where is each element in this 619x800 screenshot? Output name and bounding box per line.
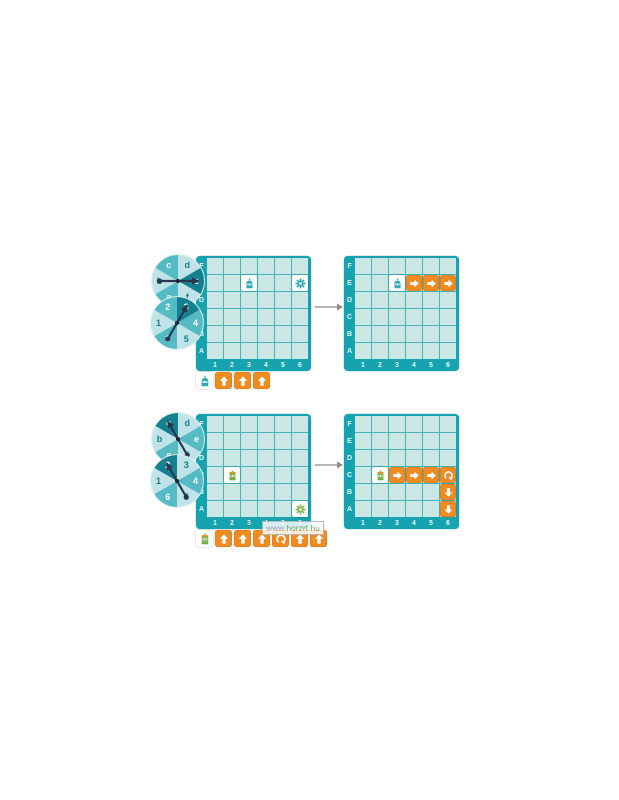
- spinner-wedge: [178, 413, 201, 439]
- board-after: FEDCBA123456: [344, 256, 459, 371]
- direction-card: [440, 467, 456, 483]
- col-label: 2: [372, 518, 388, 529]
- number-spinner: 345612: [150, 454, 204, 508]
- right-arrow-icon: [409, 470, 420, 481]
- grid-cell: [224, 416, 240, 432]
- direction-card: [440, 501, 456, 517]
- grid-cell: [258, 275, 274, 291]
- grid-cell: [241, 433, 257, 449]
- grid-cell: [207, 275, 223, 291]
- grid-cell: [241, 258, 257, 274]
- grid-cell: [355, 433, 371, 449]
- grid-cell: [241, 484, 257, 500]
- watermark: www.horzrt.hu: [262, 521, 324, 535]
- row-label: B: [197, 484, 206, 500]
- spinner-label: 1: [156, 476, 161, 486]
- grid-cell: [440, 416, 456, 432]
- grid-cell: [207, 433, 223, 449]
- up-arrow-icon: [256, 375, 268, 387]
- grid-cell: [389, 467, 405, 483]
- grid-cell: [406, 484, 422, 500]
- spinner-label: d: [185, 260, 191, 270]
- grid-cell: [275, 258, 291, 274]
- row-label: E: [197, 275, 206, 291]
- direction-card: [406, 467, 422, 483]
- grid-cell: [275, 326, 291, 342]
- right-arrow-icon: [426, 470, 437, 481]
- grid-cell: [406, 326, 422, 342]
- col-label: 4: [258, 360, 274, 371]
- letter-spinner: defabc: [151, 254, 205, 308]
- grid-cell: [207, 343, 223, 359]
- grid-cell: [258, 433, 274, 449]
- grid-cell: [406, 292, 422, 308]
- grid-cell: [355, 484, 371, 500]
- spinner-needle-icon: [163, 460, 191, 501]
- spinner-wedge: [152, 268, 178, 294]
- robot-tile: [196, 372, 213, 389]
- down-arrow-icon: [443, 487, 454, 498]
- spinner-wedge: [151, 468, 177, 494]
- row-label: B: [197, 326, 206, 342]
- col-label: 5: [275, 360, 291, 371]
- grid-cell: [355, 275, 371, 291]
- spinner-wedge: [177, 455, 200, 481]
- robot-tile: [389, 275, 405, 291]
- grid-cell: [440, 275, 456, 291]
- spinner-wedge: [155, 255, 178, 281]
- row-label: A: [197, 343, 206, 359]
- row-label: D: [197, 292, 206, 308]
- grid-cell: [423, 309, 439, 325]
- grid-cell: [423, 292, 439, 308]
- grid-cell: [241, 467, 257, 483]
- grid-cell: [258, 292, 274, 308]
- grid-cell: [423, 275, 439, 291]
- direction-card: [215, 530, 232, 547]
- grid-cell: [406, 467, 422, 483]
- direction-card: [423, 467, 439, 483]
- up-arrow-icon: [218, 533, 230, 545]
- grid-cell: [423, 501, 439, 517]
- grid-cell: [207, 326, 223, 342]
- spinner-label: b: [157, 276, 163, 286]
- grid-cell: [440, 467, 456, 483]
- grid-cell: [275, 292, 291, 308]
- row-label: B: [345, 326, 354, 342]
- grid-cell: [406, 309, 422, 325]
- grid-cell: [275, 343, 291, 359]
- grid-cell: [207, 258, 223, 274]
- grid-cell: [207, 501, 223, 517]
- grid-cell: [440, 258, 456, 274]
- grid-cell: [440, 433, 456, 449]
- col-label: 1: [355, 518, 371, 529]
- number-spinner: 345612: [150, 296, 204, 350]
- spinner-needle-icon: [163, 302, 191, 343]
- gear-tile: [292, 275, 308, 291]
- grid-cell: [292, 416, 308, 432]
- spinner-wedge: [177, 468, 203, 494]
- grid-cell: [292, 501, 308, 517]
- robot-tile: [196, 530, 213, 547]
- grid-cell: [406, 416, 422, 432]
- grid-cell: [224, 484, 240, 500]
- grid-cell: [440, 501, 456, 517]
- spinner-wedge: [154, 323, 177, 349]
- col-label: 3: [389, 518, 405, 529]
- spinner-wedge: [177, 310, 203, 336]
- grid-cell: [389, 501, 405, 517]
- grid-cell: [389, 292, 405, 308]
- grid-cell: [423, 258, 439, 274]
- grid-cell: [372, 416, 388, 432]
- grid-cell: [355, 326, 371, 342]
- grid-cell: [224, 467, 240, 483]
- grid-cell: [372, 326, 388, 342]
- robot-icon: [244, 278, 255, 289]
- watermark-prefix: www.: [266, 523, 286, 533]
- right-arrow-icon: [426, 278, 437, 289]
- grid-cell: [258, 484, 274, 500]
- right-arrow-icon: [409, 278, 420, 289]
- col-label: 6: [292, 360, 308, 371]
- grid-cell: [292, 258, 308, 274]
- direction-card: [440, 484, 456, 500]
- grid-cell: [292, 292, 308, 308]
- grid-cell: [423, 450, 439, 466]
- spinner-wedge: [178, 268, 204, 294]
- row-label: D: [345, 450, 354, 466]
- grid-cell: [372, 450, 388, 466]
- spinner-needle-icon: [164, 418, 192, 459]
- spinner-label: c: [166, 418, 171, 428]
- spinner-wedge: [177, 297, 200, 323]
- grid-cell: [406, 433, 422, 449]
- direction-card: [234, 530, 251, 547]
- spinner-label: e: [194, 276, 199, 286]
- direction-card: [389, 467, 405, 483]
- grid-cell: [258, 501, 274, 517]
- col-label: 1: [207, 360, 223, 371]
- board-before: FEDCBA123456: [196, 414, 311, 529]
- grid-cell: [372, 433, 388, 449]
- command-sequence: [196, 372, 270, 389]
- grid-cell: [355, 343, 371, 359]
- row-label: A: [345, 343, 354, 359]
- grid-cell: [241, 450, 257, 466]
- watermark-domain: horzrt.hu: [286, 523, 320, 533]
- direction-card: [423, 275, 439, 291]
- grid-cell: [389, 309, 405, 325]
- gear-icon: [295, 504, 306, 515]
- right-arrow-icon: [392, 470, 403, 481]
- grid-cell: [389, 275, 405, 291]
- robot-icon: [199, 533, 211, 545]
- col-label: 6: [440, 360, 456, 371]
- letter-spinner: defabc: [151, 412, 205, 466]
- spinner-label: 2: [165, 460, 170, 470]
- grid-cell: [275, 501, 291, 517]
- spinner-wedge: [178, 426, 204, 452]
- col-label: 3: [389, 360, 405, 371]
- col-label: 2: [224, 518, 240, 529]
- row-label: C: [197, 309, 206, 325]
- spinner-wedge: [155, 413, 178, 439]
- grid-cell: [406, 343, 422, 359]
- robot-tile: [224, 467, 240, 483]
- col-label: 1: [355, 360, 371, 371]
- col-label: 4: [406, 518, 422, 529]
- grid-cell: [241, 326, 257, 342]
- board-grid: [207, 416, 308, 517]
- col-label: 3: [241, 518, 257, 529]
- grid-cell: [275, 275, 291, 291]
- row-label: D: [197, 450, 206, 466]
- grid-cell: [423, 326, 439, 342]
- grid-cell: [275, 309, 291, 325]
- grid-cell: [207, 467, 223, 483]
- row-label: C: [345, 309, 354, 325]
- grid-cell: [440, 484, 456, 500]
- spinner-wedge: [155, 439, 178, 465]
- grid-cell: [355, 501, 371, 517]
- spinner-wheel: defabc: [151, 254, 205, 308]
- grid-cell: [224, 326, 240, 342]
- up-arrow-icon: [237, 375, 249, 387]
- spinner-label: 5: [184, 492, 189, 502]
- grid-cell: [440, 450, 456, 466]
- grid-cell: [355, 416, 371, 432]
- grid-cell: [406, 275, 422, 291]
- grid-cell: [372, 467, 388, 483]
- grid-cell: [355, 450, 371, 466]
- instruction-diagram: defabc 345612 FEDCBA123456 FEDCBA123456: [0, 0, 619, 800]
- grid-cell: [372, 501, 388, 517]
- board-grid: [355, 258, 456, 359]
- right-arrow-icon: [443, 278, 454, 289]
- board-after: FEDCBA123456: [344, 414, 459, 529]
- grid-cell: [440, 326, 456, 342]
- spinner-wheel: 345612: [150, 296, 204, 350]
- spinner-label: e: [194, 434, 199, 444]
- robot-icon: [199, 375, 211, 387]
- board-before: FEDCBA123456: [196, 256, 311, 371]
- grid-cell: [423, 416, 439, 432]
- grid-cell: [258, 343, 274, 359]
- grid-cell: [224, 501, 240, 517]
- grid-cell: [258, 326, 274, 342]
- spinner-wedge: [155, 281, 178, 307]
- grid-cell: [440, 309, 456, 325]
- grid-cell: [292, 467, 308, 483]
- grid-cell: [292, 309, 308, 325]
- spinner-wedge: [178, 439, 201, 465]
- grid-cell: [275, 416, 291, 432]
- grid-cell: [423, 343, 439, 359]
- spinner-wheel: defabc: [151, 412, 205, 466]
- spinner-wedge: [177, 323, 200, 349]
- grid-cell: [292, 484, 308, 500]
- spinner-label: 3: [184, 302, 189, 312]
- row-label: E: [345, 275, 354, 291]
- row-label: C: [345, 467, 354, 483]
- col-label: 4: [406, 360, 422, 371]
- row-label: F: [197, 416, 206, 432]
- spinner-label: 3: [184, 460, 189, 470]
- grid-cell: [355, 309, 371, 325]
- grid-cell: [355, 467, 371, 483]
- col-label: 2: [224, 360, 240, 371]
- spinner-wedge: [151, 310, 177, 336]
- row-label: A: [197, 501, 206, 517]
- grid-cell: [241, 416, 257, 432]
- grid-cell: [423, 467, 439, 483]
- grid-cell: [241, 309, 257, 325]
- spinner-label: 6: [165, 334, 170, 344]
- grid-cell: [423, 484, 439, 500]
- col-label: 1: [207, 518, 223, 529]
- grid-cell: [224, 343, 240, 359]
- grid-cell: [258, 450, 274, 466]
- grid-cell: [258, 467, 274, 483]
- gear-tile: [292, 501, 308, 517]
- grid-cell: [389, 450, 405, 466]
- grid-cell: [406, 450, 422, 466]
- grid-cell: [292, 450, 308, 466]
- grid-cell: [406, 258, 422, 274]
- grid-cell: [224, 450, 240, 466]
- grid-cell: [241, 501, 257, 517]
- spinner-label: 4: [193, 318, 198, 328]
- row-label: C: [197, 467, 206, 483]
- grid-cell: [207, 292, 223, 308]
- grid-cell: [292, 433, 308, 449]
- grid-cell: [292, 275, 308, 291]
- board-grid: [355, 416, 456, 517]
- grid-cell: [372, 484, 388, 500]
- robot-icon: [392, 278, 403, 289]
- grid-cell: [389, 343, 405, 359]
- grid-cell: [372, 275, 388, 291]
- spinner-label: 1: [156, 318, 161, 328]
- grid-cell: [275, 450, 291, 466]
- spinner-needle-icon: [157, 278, 200, 285]
- grid-cell: [275, 484, 291, 500]
- grid-cell: [224, 433, 240, 449]
- grid-cell: [258, 416, 274, 432]
- spinner-label: c: [166, 260, 171, 270]
- up-arrow-icon: [237, 533, 249, 545]
- spinner-label: f: [186, 292, 190, 302]
- spinner-wheel: 345612: [150, 454, 204, 508]
- turn-right-arrow-icon: [443, 470, 454, 481]
- row-label: F: [197, 258, 206, 274]
- up-arrow-icon: [218, 375, 230, 387]
- col-label: 5: [423, 518, 439, 529]
- direction-card: [253, 372, 270, 389]
- row-label: E: [345, 433, 354, 449]
- col-label: 6: [440, 518, 456, 529]
- robot-tile: [241, 275, 257, 291]
- grid-cell: [440, 343, 456, 359]
- direction-card: [234, 372, 251, 389]
- gear-icon: [295, 278, 306, 289]
- grid-cell: [207, 450, 223, 466]
- spinner-wedge: [154, 297, 177, 323]
- grid-cell: [372, 292, 388, 308]
- transform-arrow-icon: [314, 301, 344, 313]
- board-grid: [207, 258, 308, 359]
- spinner-label: d: [185, 418, 191, 428]
- col-label: 5: [423, 360, 439, 371]
- spinner-wedge: [152, 426, 178, 452]
- grid-cell: [372, 343, 388, 359]
- grid-cell: [440, 292, 456, 308]
- grid-cell: [241, 343, 257, 359]
- robot-icon: [375, 470, 386, 481]
- spinner-label: a: [166, 450, 172, 460]
- row-label: F: [345, 416, 354, 432]
- grid-cell: [258, 258, 274, 274]
- robot-icon: [227, 470, 238, 481]
- grid-cell: [389, 433, 405, 449]
- spinner-wedge: [177, 481, 200, 507]
- spinner-label: 2: [165, 302, 170, 312]
- grid-cell: [224, 258, 240, 274]
- spinner-label: 4: [193, 476, 198, 486]
- grid-cell: [224, 309, 240, 325]
- row-label: A: [345, 501, 354, 517]
- grid-cell: [241, 275, 257, 291]
- grid-cell: [275, 467, 291, 483]
- row-label: D: [345, 292, 354, 308]
- grid-cell: [372, 309, 388, 325]
- spinner-label: 5: [184, 334, 189, 344]
- grid-cell: [224, 275, 240, 291]
- grid-cell: [292, 343, 308, 359]
- col-label: 3: [241, 360, 257, 371]
- spinner-label: a: [166, 292, 172, 302]
- col-label: 2: [372, 360, 388, 371]
- grid-cell: [423, 433, 439, 449]
- down-arrow-icon: [443, 504, 454, 515]
- spinner-wedge: [154, 481, 177, 507]
- direction-card: [215, 372, 232, 389]
- spinner-label: f: [186, 450, 190, 460]
- grid-cell: [224, 292, 240, 308]
- grid-cell: [406, 501, 422, 517]
- grid-cell: [389, 326, 405, 342]
- grid-cell: [207, 484, 223, 500]
- spinner-label: b: [157, 434, 163, 444]
- grid-cell: [258, 309, 274, 325]
- grid-cell: [389, 484, 405, 500]
- spinner-wedge: [178, 281, 201, 307]
- grid-cell: [207, 309, 223, 325]
- row-label: F: [345, 258, 354, 274]
- grid-cell: [292, 326, 308, 342]
- spinner-wedge: [178, 255, 201, 281]
- direction-card: [406, 275, 422, 291]
- robot-tile: [372, 467, 388, 483]
- grid-cell: [207, 416, 223, 432]
- spinner-label: 6: [165, 492, 170, 502]
- transform-arrow-icon: [314, 459, 344, 471]
- grid-cell: [389, 416, 405, 432]
- grid-cell: [389, 258, 405, 274]
- direction-card: [440, 275, 456, 291]
